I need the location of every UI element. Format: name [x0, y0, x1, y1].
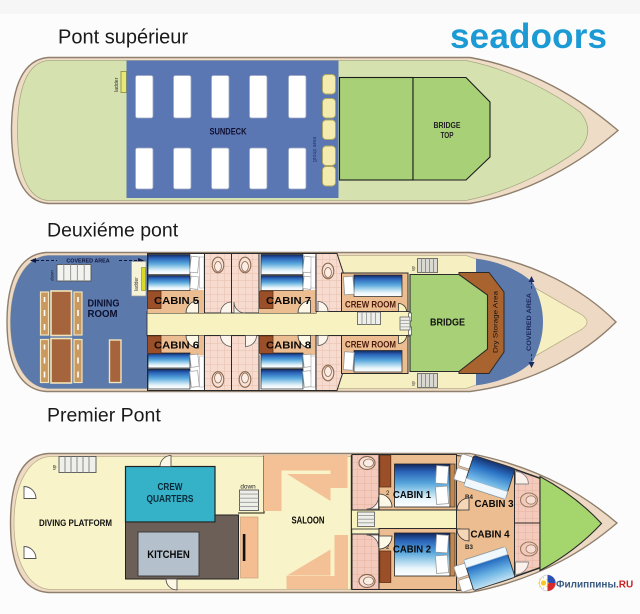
svg-text:down: down — [240, 484, 256, 491]
svg-text:Premier Pont: Premier Pont — [47, 405, 161, 427]
svg-text:CREW: CREW — [158, 482, 183, 493]
svg-text:SUNDECK: SUNDECK — [210, 127, 247, 137]
svg-text:CREW ROOM: CREW ROOM — [345, 300, 396, 310]
svg-text:BRIDGE: BRIDGE — [430, 318, 465, 329]
svg-text:Dry Storage Area: Dry Storage Area — [493, 291, 500, 353]
svg-text:KITCHEN: KITCHEN — [147, 549, 190, 561]
svg-text:CABIN 1: CABIN 1 — [393, 490, 431, 501]
svg-text:CABIN 4: CABIN 4 — [471, 530, 510, 541]
svg-text:Deuxiéme pont: Deuxiéme pont — [47, 220, 179, 242]
svg-text:DIVING PLATFORM: DIVING PLATFORM — [39, 518, 112, 528]
svg-text:B3: B3 — [465, 544, 473, 551]
svg-text:ROOM: ROOM — [88, 308, 118, 320]
svg-text:Филиппины.RU: Филиппины.RU — [556, 580, 633, 591]
svg-text:Pont supérieur: Pont supérieur — [58, 27, 188, 49]
svg-text:CREW ROOM: CREW ROOM — [345, 340, 396, 350]
svg-text:COVERED AREA: COVERED AREA — [66, 259, 109, 265]
svg-text:up: up — [52, 464, 57, 470]
svg-text:ladder: ladder — [114, 77, 120, 92]
svg-text:CABIN 8: CABIN 8 — [266, 341, 311, 352]
svg-text:QUARTERS: QUARTERS — [147, 494, 194, 505]
svg-text:CABIN 3: CABIN 3 — [475, 499, 514, 510]
svg-text:CABIN 7: CABIN 7 — [266, 296, 311, 307]
svg-text:BRIDGE: BRIDGE — [434, 121, 462, 130]
svg-text:TOP: TOP — [441, 131, 455, 140]
svg-text:up: up — [411, 266, 416, 271]
svg-text:COVERED AREA: COVERED AREA — [527, 292, 533, 351]
svg-text:group area: group area — [312, 137, 318, 162]
svg-text:CABIN 6: CABIN 6 — [154, 341, 199, 352]
svg-text:CABIN 5: CABIN 5 — [154, 296, 199, 307]
svg-text:CABIN 2: CABIN 2 — [393, 545, 431, 556]
svg-text:SALOON: SALOON — [292, 516, 325, 527]
svg-text:up: up — [411, 381, 416, 386]
svg-text:seadoors: seadoors — [450, 17, 607, 56]
svg-text:down: down — [50, 270, 55, 281]
svg-text:ladder: ladder — [134, 277, 140, 291]
